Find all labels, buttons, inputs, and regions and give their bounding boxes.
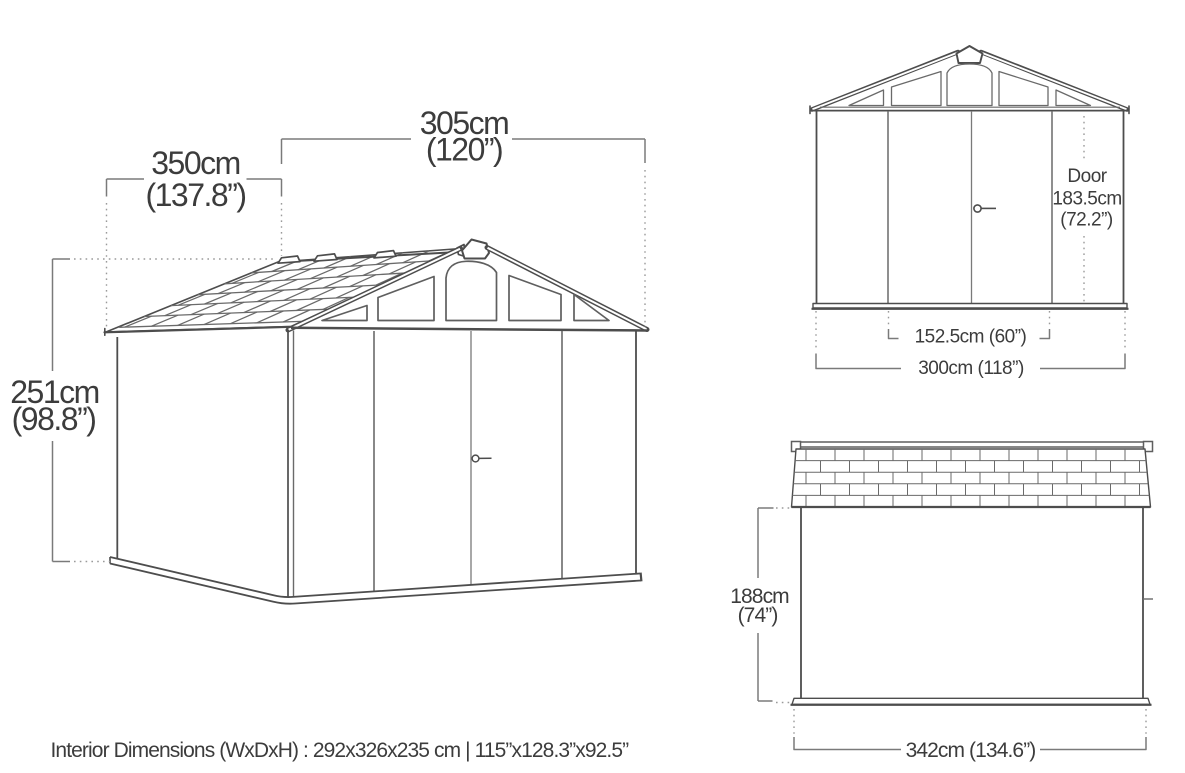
- svg-text:(137.8”): (137.8”): [145, 177, 245, 213]
- svg-text:(98.8”): (98.8”): [12, 401, 96, 437]
- svg-text:342cm (134.6”): 342cm (134.6”): [906, 739, 1036, 762]
- svg-text:Door: Door: [1067, 166, 1107, 187]
- svg-text:183.5cm: 183.5cm: [1052, 189, 1121, 210]
- svg-text:350cm: 350cm: [151, 145, 240, 181]
- svg-text:Interior Dimensions (WxDxH) :: Interior Dimensions (WxDxH) : 292x326x23…: [51, 739, 630, 762]
- svg-text:300cm (118”): 300cm (118”): [918, 358, 1024, 379]
- svg-text:(74”): (74”): [738, 604, 778, 627]
- svg-text:(72.2”): (72.2”): [1060, 210, 1113, 231]
- svg-text:(120”): (120”): [426, 132, 502, 168]
- svg-text:152.5cm (60”): 152.5cm (60”): [915, 327, 1027, 348]
